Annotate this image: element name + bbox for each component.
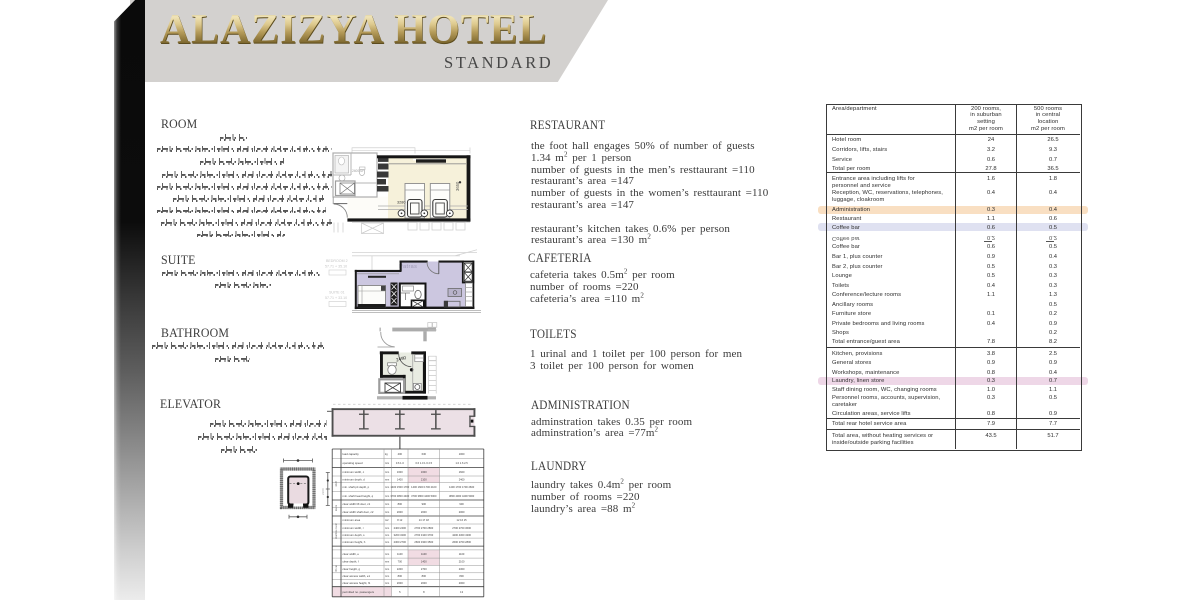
svg-text:1400: 1400: [397, 477, 403, 481]
svg-text:3700 3800 4400 5000: 3700 3800 4400 5000: [411, 494, 437, 498]
svg-text:mm: mm: [385, 561, 389, 564]
svg-text:2400 SF: 2400 SF: [352, 169, 364, 173]
svg-text:13: 13: [460, 590, 463, 594]
svg-text:2700 2700 2800: 2700 2700 2800: [414, 526, 433, 530]
svg-text:1100: 1100: [397, 552, 403, 556]
svg-text:57.71 + 35.10: 57.71 + 35.10: [325, 265, 347, 269]
svg-text:mm: mm: [385, 582, 389, 585]
svg-text:mm: mm: [385, 568, 389, 571]
svg-text:1400 1500 1700: 1400 1500 1700: [390, 485, 409, 489]
svg-text:SUITE 01: SUITE 01: [329, 291, 345, 295]
svg-text:Patras: Patras: [399, 264, 417, 270]
svg-text:2700: 2700: [421, 567, 427, 571]
svg-text:800: 800: [422, 574, 427, 578]
svg-text:load capacity: load capacity: [343, 452, 360, 456]
svg-text:800: 800: [398, 574, 403, 578]
svg-text:lift car: lift car: [335, 565, 338, 572]
svg-text:mm: mm: [385, 486, 389, 489]
svg-text:57.71 + 33.10: 57.71 + 33.10: [325, 296, 347, 300]
svg-text:mm: mm: [385, 503, 389, 506]
svg-text:min. shaft head height, q: min. shaft head height, q: [343, 494, 374, 498]
svg-text:0.6 1.0: 0.6 1.0: [396, 461, 404, 465]
svg-text:2100: 2100: [459, 560, 465, 564]
svg-text:0.6 1.0 1.6 2.5: 0.6 1.0 1.6 2.5: [416, 461, 433, 465]
svg-text:2000: 2000: [397, 581, 403, 585]
svg-text:m2: m2: [385, 519, 389, 522]
svg-text:mm: mm: [385, 471, 389, 474]
svg-text:2100: 2100: [421, 477, 427, 481]
svg-text:1600: 1600: [397, 470, 403, 474]
svg-text:mm: mm: [385, 575, 389, 578]
svg-text:clear width lift door, c1: clear width lift door, c1: [343, 502, 371, 506]
svg-text:clear access width, e1: clear access width, e1: [343, 574, 371, 578]
svg-text:BEDROOM 2: BEDROOM 2: [326, 259, 348, 263]
svg-text:minimum depth, d: minimum depth, d: [343, 477, 366, 481]
svg-text:900: 900: [459, 502, 464, 506]
svg-text:doors: doors: [335, 504, 338, 511]
svg-text:machine room: machine room: [335, 523, 338, 539]
svg-text:800: 800: [398, 502, 403, 506]
svg-text:2000: 2000: [397, 510, 403, 514]
svg-text:8 12: 8 12: [397, 518, 403, 522]
svg-text:minimum depth, s: minimum depth, s: [343, 533, 366, 537]
svg-text:14 17 18: 14 17 18: [419, 518, 430, 522]
svg-text:clear depth, f: clear depth, f: [343, 560, 359, 564]
svg-text:4200 4300 4300: 4200 4300 4300: [452, 533, 471, 537]
svg-text:operating speed: operating speed: [343, 461, 364, 465]
svg-text:2700 3100 3700: 2700 3100 3700: [414, 533, 433, 537]
svg-text:900: 900: [422, 502, 427, 506]
svg-text:permitted no. passengers: permitted no. passengers: [343, 590, 375, 594]
svg-text:1000: 1000: [459, 452, 465, 456]
svg-text:1400: 1400: [421, 560, 427, 564]
svg-text:2600 3300 3500: 2600 3300 3500: [414, 540, 433, 544]
svg-text:2400: 2400: [459, 477, 465, 481]
svg-text:2300 2700: 2300 2700: [394, 540, 407, 544]
svg-text:minimum width, r: minimum width, r: [343, 526, 364, 530]
svg-text:630: 630: [422, 452, 427, 456]
svg-text:1400 1600 1700 2100: 1400 1600 1700 2100: [411, 485, 437, 489]
svg-text:1600: 1600: [421, 470, 427, 474]
svg-text:1100: 1100: [459, 552, 465, 556]
svg-text:1.0 1.6 2.5: 1.0 1.6 2.5: [455, 461, 468, 465]
svg-text:2700 2700 3600: 2700 2700 3600: [452, 526, 471, 530]
svg-text:2000: 2000: [459, 510, 465, 514]
svg-text:mm: mm: [385, 534, 389, 537]
svg-text:clear access height, f1: clear access height, f1: [343, 581, 371, 585]
svg-text:clear width shaft door, c2: clear width shaft door, c2: [343, 510, 374, 514]
svg-text:2200: 2200: [321, 488, 325, 495]
svg-text:2000: 2000: [421, 581, 427, 585]
svg-text:3800 4000 4400 5000: 3800 4000 4400 5000: [449, 494, 475, 498]
svg-text:1100: 1100: [421, 552, 427, 556]
svg-text:clear height, g: clear height, g: [343, 567, 361, 571]
svg-text:3200 3200: 3200 3200: [394, 533, 407, 537]
svg-text:3280: 3280: [397, 201, 405, 205]
svg-text:shaft: shaft: [335, 481, 338, 487]
svg-text:mm: mm: [385, 478, 389, 481]
svg-text:1600: 1600: [459, 470, 465, 474]
svg-text:minimum height, h: minimum height, h: [343, 540, 366, 544]
svg-text:700: 700: [398, 560, 403, 564]
svg-text:2400 2400: 2400 2400: [394, 526, 407, 530]
svg-text:800: 800: [459, 574, 464, 578]
svg-text:2000: 2000: [459, 581, 465, 585]
svg-text:mm: mm: [385, 553, 389, 556]
svg-text:12 16 15: 12 16 15: [457, 518, 468, 522]
svg-text:mm: mm: [385, 527, 389, 530]
svg-text:mm: mm: [385, 511, 389, 514]
svg-text:mm: mm: [385, 495, 389, 498]
svg-text:2000: 2000: [421, 510, 427, 514]
svg-text:5: 5: [399, 590, 401, 594]
svg-text:2600 2700 2800: 2600 2700 2800: [452, 540, 471, 544]
svg-text:2200: 2200: [397, 567, 403, 571]
svg-text:3700 3800 4400: 3700 3800 4400: [390, 494, 409, 498]
svg-text:8: 8: [423, 590, 425, 594]
svg-text:minimum width, c: minimum width, c: [343, 470, 365, 474]
svg-text:minimum area: minimum area: [343, 518, 361, 522]
svg-text:clear width, e: clear width, e: [343, 552, 360, 556]
svg-text:400: 400: [398, 452, 403, 456]
svg-text:2300: 2300: [459, 567, 465, 571]
svg-text:1400 1700 1700 2600: 1400 1700 1700 2600: [449, 485, 475, 489]
svg-text:mm: mm: [385, 541, 389, 544]
svg-text:kg: kg: [385, 453, 388, 456]
svg-text:m/s: m/s: [385, 462, 390, 465]
svg-text:min. shaft pit depth, p: min. shaft pit depth, p: [343, 485, 370, 489]
